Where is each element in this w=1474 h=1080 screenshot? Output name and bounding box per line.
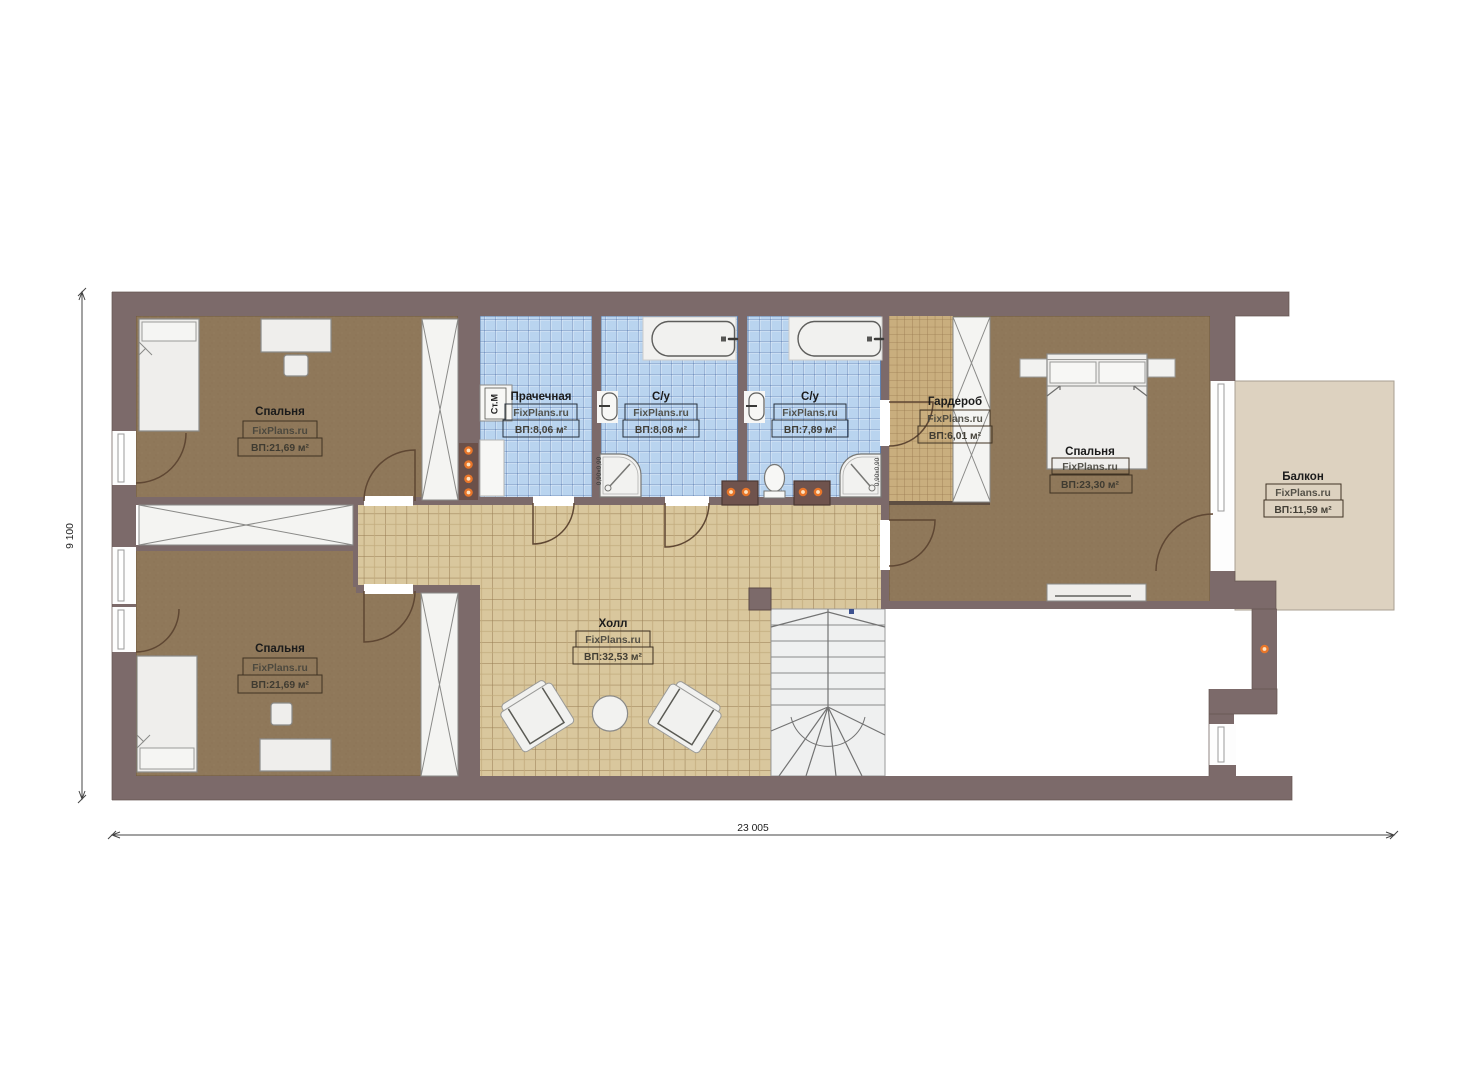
svg-text:FixPlans.ru: FixPlans.ru (633, 408, 689, 419)
svg-text:ВП:21,69 м²: ВП:21,69 м² (251, 680, 310, 691)
svg-text:ВП:21,69 м²: ВП:21,69 м² (251, 443, 310, 454)
svg-text:Ст.М: Ст.М (489, 394, 499, 414)
svg-text:FixPlans.ru: FixPlans.ru (585, 635, 641, 646)
svg-text:ВП:8,06 м²: ВП:8,06 м² (515, 425, 568, 436)
svg-text:FixPlans.ru: FixPlans.ru (252, 426, 308, 437)
svg-text:ВП:7,89 м²: ВП:7,89 м² (784, 425, 837, 436)
svg-text:ВП:8,08 м²: ВП:8,08 м² (635, 425, 688, 436)
svg-text:FixPlans.ru: FixPlans.ru (782, 408, 838, 419)
svg-text:0,90х0,90: 0,90х0,90 (874, 457, 881, 486)
svg-text:Гардероб: Гардероб (928, 396, 982, 408)
svg-text:ВП:6,01 м²: ВП:6,01 м² (929, 431, 982, 442)
svg-text:ВП:23,30 м²: ВП:23,30 м² (1061, 480, 1120, 491)
svg-text:ВП:32,53 м²: ВП:32,53 м² (584, 652, 643, 663)
svg-text:FixPlans.ru: FixPlans.ru (513, 408, 569, 419)
svg-text:23 005: 23 005 (737, 823, 769, 834)
svg-text:С/у: С/у (652, 391, 671, 403)
svg-text:ВП:11,59 м²: ВП:11,59 м² (1274, 505, 1332, 516)
svg-text:FixPlans.ru: FixPlans.ru (1275, 488, 1331, 499)
svg-text:9 100: 9 100 (65, 523, 76, 549)
svg-text:Спальня: Спальня (255, 643, 305, 655)
svg-text:FixPlans.ru: FixPlans.ru (1062, 462, 1118, 473)
svg-text:Холл: Холл (599, 618, 628, 630)
svg-text:Спальня: Спальня (1065, 446, 1115, 458)
svg-text:Спальня: Спальня (255, 406, 305, 418)
svg-text:Балкон: Балкон (1282, 471, 1324, 483)
svg-text:0,90х0,90: 0,90х0,90 (596, 456, 603, 485)
svg-text:FixPlans.ru: FixPlans.ru (927, 414, 983, 425)
svg-text:Прачечная: Прачечная (511, 391, 572, 403)
svg-text:FixPlans.ru: FixPlans.ru (252, 663, 308, 674)
svg-text:С/у: С/у (801, 391, 820, 403)
